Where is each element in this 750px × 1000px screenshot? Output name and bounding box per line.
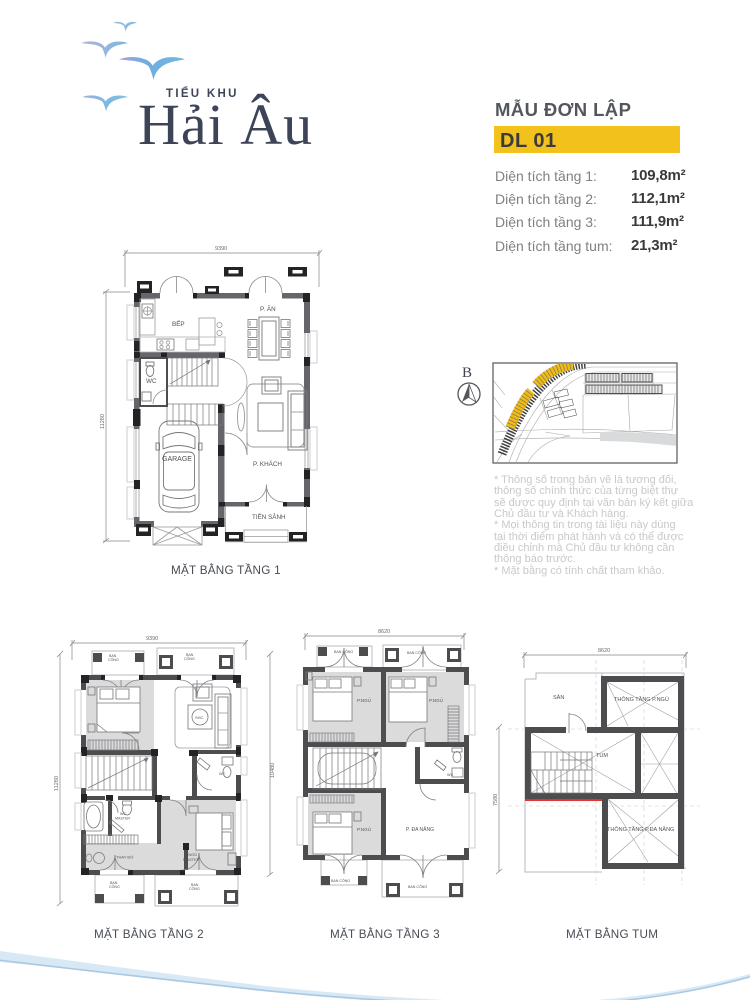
svg-text:P.NGỦ: P.NGỦ (357, 697, 371, 703)
svg-text:B: B (462, 365, 472, 381)
svg-text:8620: 8620 (598, 648, 610, 654)
svg-text:P.NGỦ: P.NGỦ (429, 697, 443, 703)
svg-text:BAN CÔNG: BAN CÔNG (408, 884, 427, 889)
svg-text:WC: WC (219, 772, 226, 776)
svg-text:P.NGỦ: P.NGỦ (357, 826, 371, 832)
svg-text:CÔNG: CÔNG (109, 884, 120, 889)
svg-text:9390: 9390 (146, 636, 158, 642)
svg-text:BAN CÔNG: BAN CÔNG (407, 650, 426, 655)
svg-text:MASTER: MASTER (183, 857, 200, 862)
svg-text:7580: 7580 (493, 794, 499, 806)
svg-text:THAY ĐỒ: THAY ĐỒ (116, 855, 133, 860)
svg-text:WC: WC (146, 378, 157, 385)
svg-text:WC: WC (447, 773, 454, 777)
svg-text:11280: 11280 (100, 414, 106, 429)
svg-text:CÔNG: CÔNG (189, 886, 200, 891)
svg-text:SÂN: SÂN (553, 694, 564, 701)
svg-text:9390: 9390 (215, 246, 227, 252)
svg-text:P. ĂN: P. ĂN (260, 304, 276, 313)
svg-text:CÔNG: CÔNG (184, 656, 195, 661)
svg-text:P. ĐA NĂNG: P. ĐA NĂNG (406, 826, 434, 833)
svg-text:GARAGE: GARAGE (162, 456, 192, 463)
svg-text:TUM: TUM (596, 753, 608, 759)
svg-text:TIỀN SẢNH: TIỀN SẢNH (252, 511, 286, 521)
svg-text:BAN CÔNG: BAN CÔNG (331, 878, 350, 883)
svg-text:THÔNG TẦNG P.NGỦ: THÔNG TẦNG P.NGỦ (614, 696, 669, 703)
svg-text:8620: 8620 (378, 629, 390, 635)
svg-text:THÔNG TẦNG P.ĐA NĂNG: THÔNG TẦNG P.ĐA NĂNG (607, 826, 674, 833)
svg-text:WC: WC (120, 812, 126, 816)
svg-text:10480: 10480 (270, 763, 276, 778)
svg-text:CÔNG: CÔNG (108, 657, 119, 662)
svg-text:SHC: SHC (195, 715, 204, 720)
svg-text:MASTER: MASTER (115, 817, 130, 821)
svg-text:11280: 11280 (54, 776, 60, 791)
svg-text:BẾP: BẾP (172, 318, 185, 328)
svg-text:P. KHÁCH: P. KHÁCH (253, 459, 282, 468)
